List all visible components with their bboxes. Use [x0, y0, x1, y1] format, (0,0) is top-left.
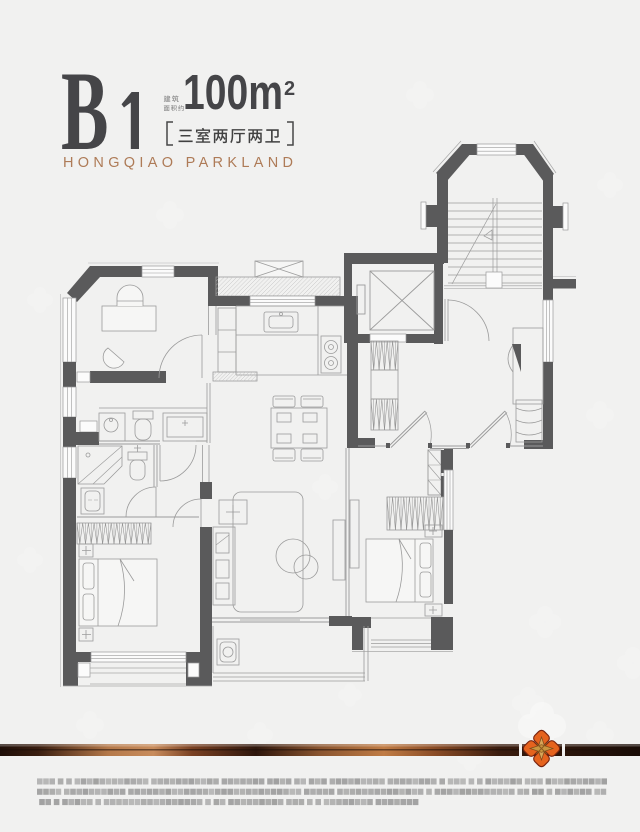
svg-text:HONGQIAO PARKLAND: HONGQIAO PARKLAND: [63, 155, 299, 171]
svg-text:2: 2: [284, 78, 295, 100]
svg-text:100m: 100m: [183, 66, 283, 120]
